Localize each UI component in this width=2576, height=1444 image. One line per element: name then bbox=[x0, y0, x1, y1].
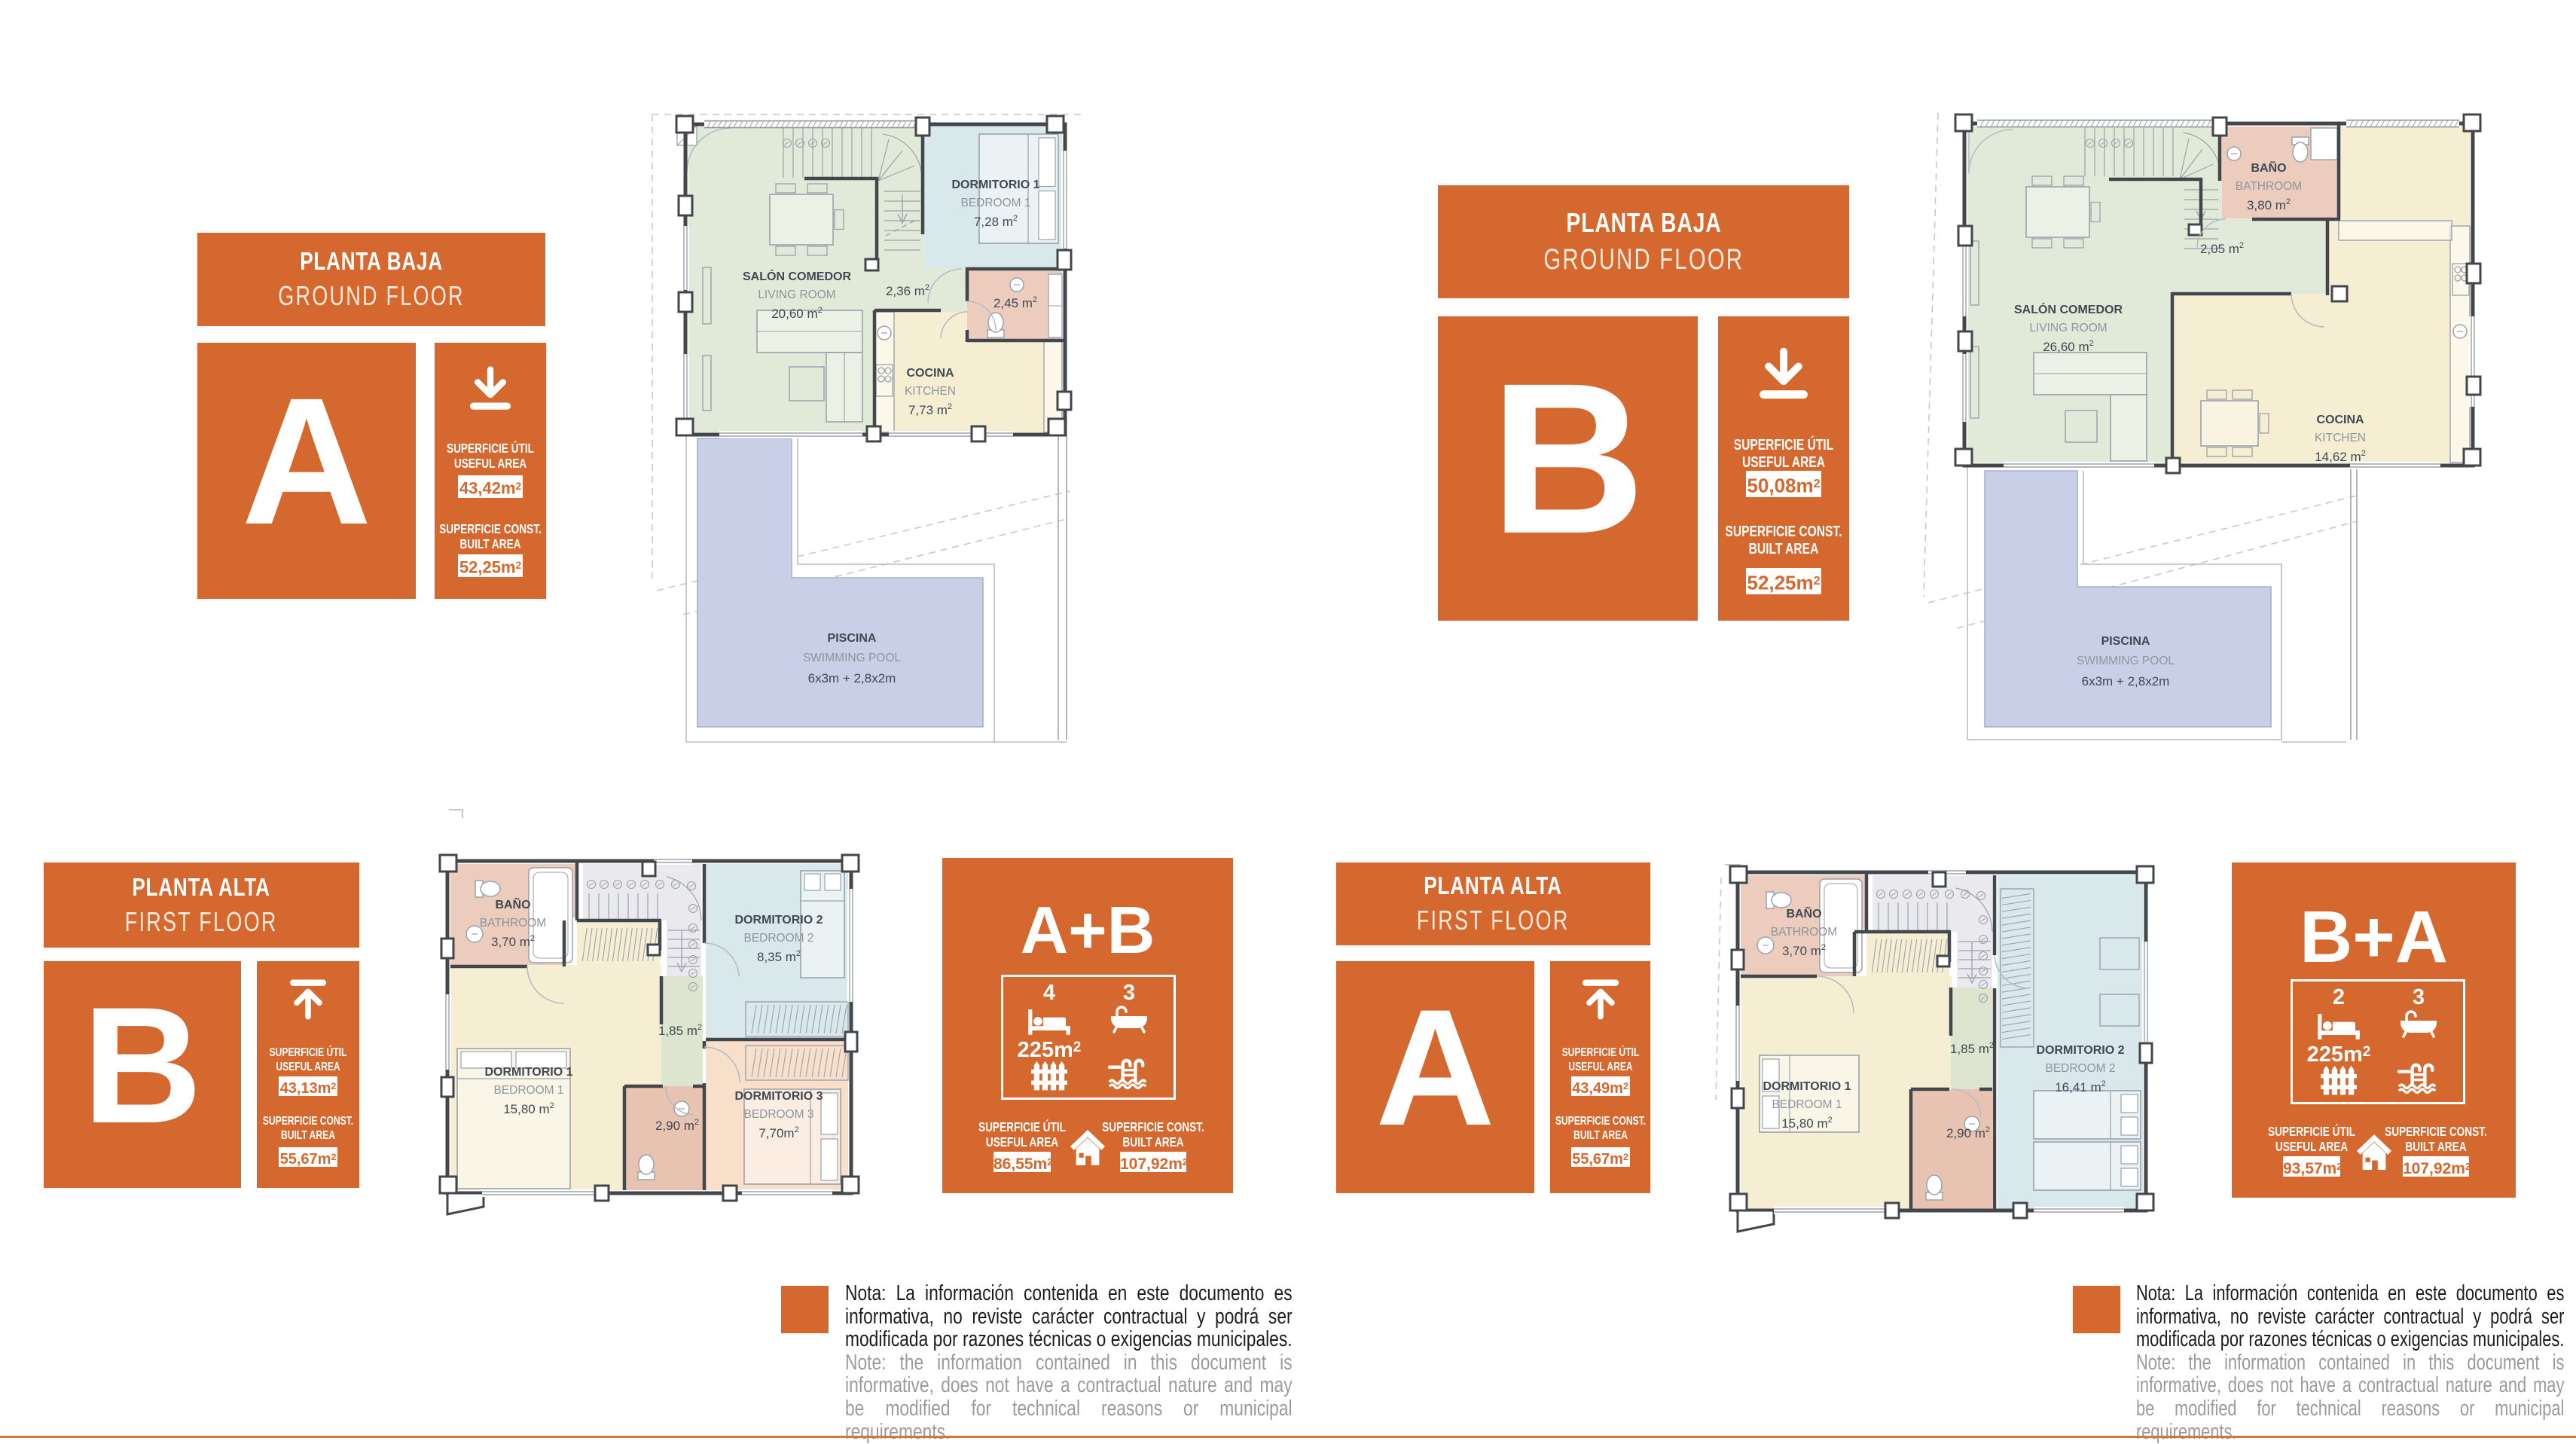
svg-text:8,35 m2: 8,35 m2 bbox=[757, 949, 801, 964]
svg-text:3,80 m2: 3,80 m2 bbox=[2247, 197, 2291, 212]
svg-text:COCINA: COCINA bbox=[2316, 414, 2364, 426]
svg-text:16,41 m2: 16,41 m2 bbox=[2055, 1079, 2106, 1094]
svg-text:BATHROOM: BATHROOM bbox=[1771, 926, 1837, 939]
svg-text:LIVING ROOM: LIVING ROOM bbox=[2029, 322, 2107, 334]
svg-text:BEDROOM 1: BEDROOM 1 bbox=[960, 197, 1030, 209]
svg-text:COCINA: COCINA bbox=[906, 367, 954, 380]
svg-text:SALÓN COMEDOR: SALÓN COMEDOR bbox=[743, 269, 851, 283]
svg-text:BEDROOM 1: BEDROOM 1 bbox=[1772, 1098, 1842, 1111]
svg-text:2,90 m2: 2,90 m2 bbox=[655, 1118, 699, 1133]
svg-text:DORMITORIO 1: DORMITORIO 1 bbox=[951, 179, 1039, 191]
svg-text:3,70 m2: 3,70 m2 bbox=[491, 934, 535, 949]
svg-text:DORMITORIO 1: DORMITORIO 1 bbox=[484, 1066, 572, 1079]
svg-text:BAÑO: BAÑO bbox=[2251, 160, 2286, 175]
svg-text:BEDROOM 3: BEDROOM 3 bbox=[743, 1108, 813, 1121]
svg-text:DORMITORIO 3: DORMITORIO 3 bbox=[734, 1090, 823, 1103]
svg-text:2,36 m2: 2,36 m2 bbox=[886, 283, 929, 298]
svg-text:KITCHEN: KITCHEN bbox=[905, 385, 956, 398]
svg-text:2,45 m2: 2,45 m2 bbox=[993, 295, 1037, 310]
svg-text:26,60 m2: 26,60 m2 bbox=[2043, 339, 2094, 354]
svg-text:14,62 m2: 14,62 m2 bbox=[2315, 449, 2366, 464]
svg-text:BEDROOM 1: BEDROOM 1 bbox=[493, 1084, 563, 1097]
svg-text:PISCINA: PISCINA bbox=[2101, 635, 2150, 648]
svg-text:2,90 m2: 2,90 m2 bbox=[1946, 1125, 1990, 1140]
svg-text:15,80 m2: 15,80 m2 bbox=[1781, 1116, 1833, 1131]
svg-text:BEDROOM 2: BEDROOM 2 bbox=[743, 932, 813, 945]
svg-text:KITCHEN: KITCHEN bbox=[2315, 432, 2366, 444]
svg-text:2,05 m2: 2,05 m2 bbox=[2200, 241, 2244, 256]
svg-text:7,73 m2: 7,73 m2 bbox=[908, 402, 952, 417]
svg-text:1,85 m2: 1,85 m2 bbox=[1950, 1041, 1994, 1056]
svg-text:7,28 m2: 7,28 m2 bbox=[974, 214, 1018, 229]
svg-text:3,70 m2: 3,70 m2 bbox=[1782, 943, 1826, 958]
svg-text:SALÓN COMEDOR: SALÓN COMEDOR bbox=[2014, 302, 2123, 316]
svg-text:6x3m + 2,8x2m: 6x3m + 2,8x2m bbox=[808, 671, 896, 685]
svg-text:BEDROOM 2: BEDROOM 2 bbox=[2045, 1062, 2115, 1075]
svg-text:BAÑO: BAÑO bbox=[1786, 905, 1821, 920]
svg-text:DORMITORIO 2: DORMITORIO 2 bbox=[2036, 1044, 2124, 1057]
svg-text:15,80 m2: 15,80 m2 bbox=[503, 1101, 554, 1116]
svg-text:PISCINA: PISCINA bbox=[828, 632, 877, 645]
svg-text:20,60 m2: 20,60 m2 bbox=[771, 306, 823, 321]
svg-text:BATHROOM: BATHROOM bbox=[480, 917, 546, 930]
svg-text:1,85 m2: 1,85 m2 bbox=[658, 1023, 702, 1038]
svg-text:SWIMMING POOL: SWIMMING POOL bbox=[2077, 655, 2175, 667]
svg-text:6x3m + 2,8x2m: 6x3m + 2,8x2m bbox=[2082, 674, 2170, 688]
svg-text:7,70m2: 7,70m2 bbox=[758, 1125, 798, 1140]
svg-text:DORMITORIO 2: DORMITORIO 2 bbox=[734, 914, 823, 927]
svg-text:DORMITORIO 1: DORMITORIO 1 bbox=[1763, 1080, 1851, 1093]
svg-text:BATHROOM: BATHROOM bbox=[2236, 180, 2302, 193]
svg-text:SWIMMING POOL: SWIMMING POOL bbox=[803, 652, 901, 664]
svg-text:BAÑO: BAÑO bbox=[495, 896, 530, 911]
svg-text:LIVING ROOM: LIVING ROOM bbox=[758, 288, 835, 301]
